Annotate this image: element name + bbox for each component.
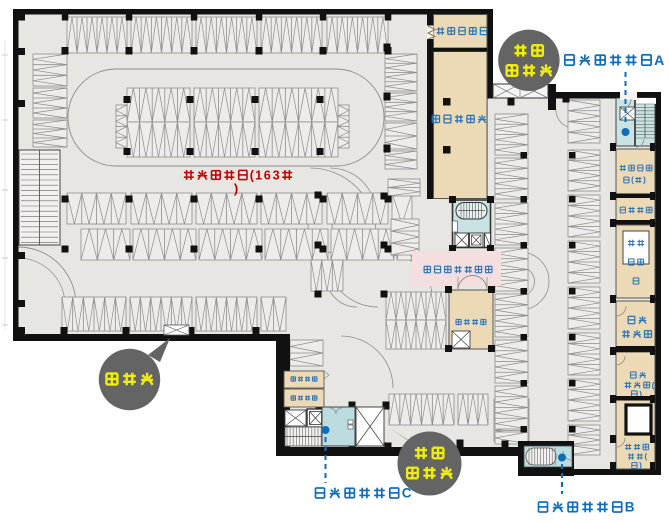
svg-text:): ) bbox=[643, 176, 646, 185]
svg-text:(: ( bbox=[631, 176, 634, 185]
svg-text:(: ( bbox=[652, 380, 655, 390]
svg-text:3: 3 bbox=[273, 168, 280, 182]
svg-text:): ) bbox=[639, 461, 642, 470]
svg-text:(: ( bbox=[644, 452, 647, 461]
svg-text:B: B bbox=[625, 500, 635, 515]
svg-text:A: A bbox=[654, 52, 664, 68]
svg-text:C: C bbox=[402, 486, 412, 501]
svg-text:): ) bbox=[234, 181, 238, 196]
svg-text:6: 6 bbox=[264, 168, 271, 182]
svg-text:1: 1 bbox=[255, 168, 262, 182]
